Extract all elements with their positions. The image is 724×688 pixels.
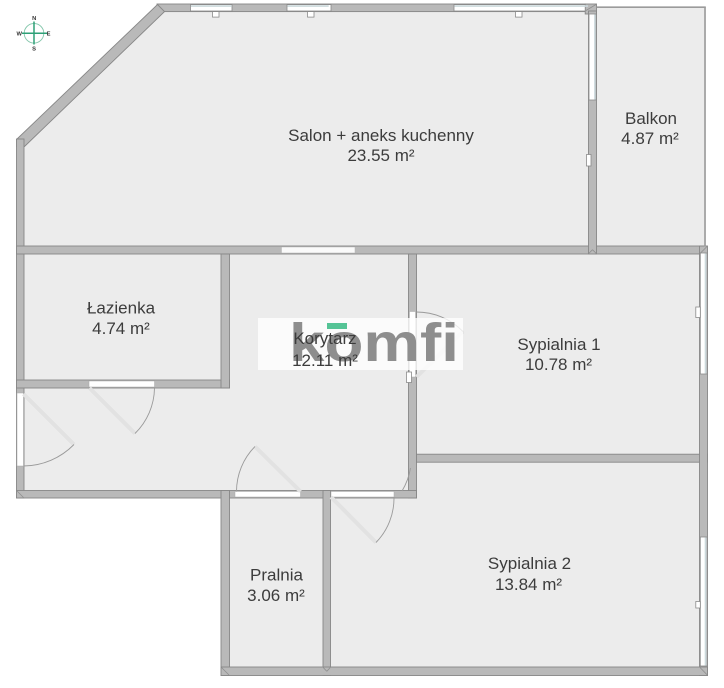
svg-text:W: W (16, 31, 22, 37)
svg-text:Korytarz: Korytarz (293, 329, 356, 348)
svg-text:N: N (32, 16, 36, 22)
svg-text:Balkon: Balkon (625, 109, 677, 128)
svg-text:4.87 m²: 4.87 m² (621, 129, 679, 148)
svg-text:3.06 m²: 3.06 m² (247, 586, 305, 605)
svg-text:23.55 m²: 23.55 m² (347, 146, 414, 165)
svg-text:Pralnia: Pralnia (250, 566, 303, 585)
svg-text:Sypialnia 2: Sypialnia 2 (488, 554, 571, 573)
svg-text:Salon + aneks kuchenny: Salon + aneks kuchenny (288, 126, 474, 145)
svg-text:4.74 m²: 4.74 m² (92, 319, 150, 338)
svg-text:S: S (32, 47, 36, 53)
svg-text:12.11 m²: 12.11 m² (292, 351, 358, 370)
svg-text:E: E (47, 31, 51, 37)
svg-text:Sypialnia 1: Sypialnia 1 (517, 335, 600, 354)
svg-text:13.84 m²: 13.84 m² (495, 575, 562, 594)
svg-text:10.78 m²: 10.78 m² (525, 355, 592, 374)
svg-text:Łazienka: Łazienka (87, 299, 156, 318)
